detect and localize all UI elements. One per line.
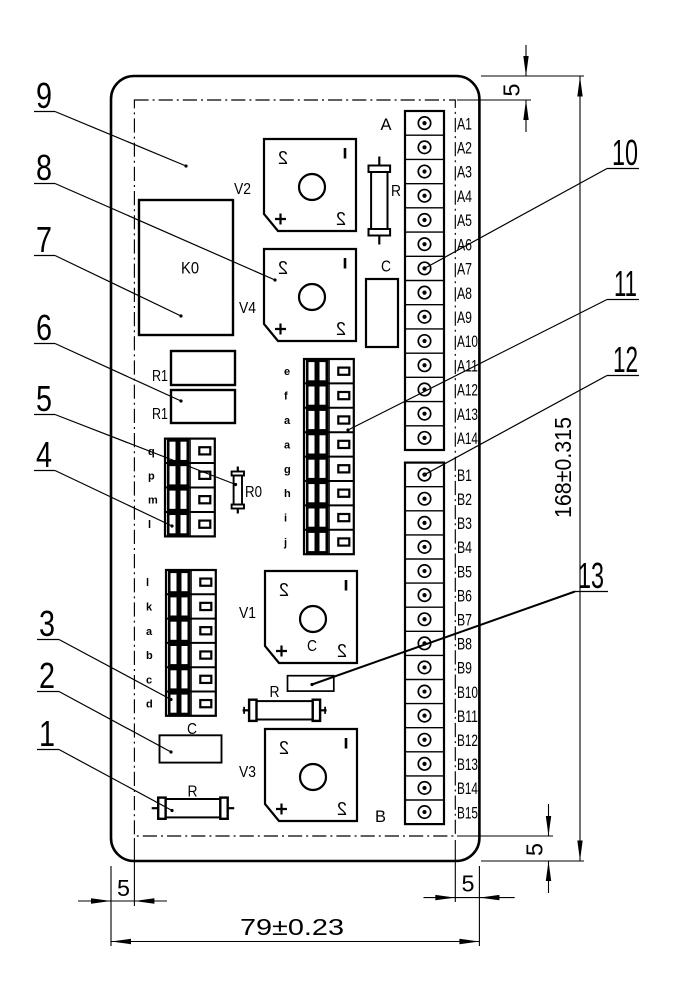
svg-text:b: b [146,650,153,662]
svg-text:V3: V3 [239,764,256,781]
svg-text:l: l [148,519,151,531]
svg-text:4: 4 [36,434,52,475]
svg-text:B15: B15 [457,803,478,822]
svg-text:2: 2 [278,258,288,278]
svg-text:A4: A4 [457,187,472,206]
svg-text:10: 10 [612,132,638,173]
svg-text:R: R [270,684,280,701]
svg-text:A8: A8 [457,284,472,303]
svg-text:B7: B7 [457,610,472,629]
svg-text:5: 5 [522,843,548,856]
svg-text:c: c [146,674,152,686]
svg-text:A5: A5 [457,211,472,230]
svg-text:2: 2 [337,641,347,661]
svg-text:B4: B4 [457,538,472,557]
svg-text:R0: R0 [245,484,262,501]
svg-text:m: m [148,495,158,507]
svg-text:12: 12 [613,339,638,380]
svg-text:B3: B3 [457,514,472,533]
svg-text:R1: R1 [152,406,168,423]
svg-text:p: p [148,470,155,482]
svg-text:2: 2 [279,580,289,600]
svg-text:79±0.23: 79±0.23 [240,914,344,940]
svg-text:k: k [146,601,153,613]
svg-text:B1: B1 [457,466,472,485]
svg-text:6: 6 [36,307,52,348]
svg-text:3: 3 [39,603,55,644]
svg-text:B: B [375,807,386,826]
svg-text:a: a [284,439,291,451]
svg-text:B5: B5 [457,562,472,581]
svg-text:11: 11 [614,263,637,304]
svg-text:5: 5 [117,875,130,901]
svg-text:2: 2 [337,799,347,819]
svg-text:C: C [307,638,317,655]
svg-text:C: C [187,721,197,738]
svg-text:V1: V1 [239,605,256,622]
svg-text:V4: V4 [239,300,256,317]
svg-text:2: 2 [336,209,346,229]
svg-text:e: e [284,366,290,378]
svg-text:2: 2 [336,319,346,339]
svg-text:5: 5 [36,378,52,419]
svg-text:A12: A12 [457,381,478,400]
svg-text:5: 5 [462,871,475,897]
svg-text:A7: A7 [457,260,472,279]
svg-text:A9: A9 [457,308,472,327]
svg-text:A: A [381,115,393,134]
svg-text:l: l [146,577,149,589]
svg-text:R1: R1 [152,368,168,385]
svg-text:A2: A2 [457,139,472,158]
svg-text:h: h [284,488,291,500]
svg-text:A6: A6 [457,235,472,254]
svg-text:168±0.315: 168±0.315 [550,417,576,518]
svg-text:K0: K0 [181,259,199,278]
svg-text:7: 7 [36,219,52,260]
svg-text:B2: B2 [457,490,472,509]
svg-text:B11: B11 [457,707,478,726]
svg-text:1: 1 [39,713,55,754]
svg-text:g: g [284,464,291,476]
svg-text:2: 2 [278,148,288,168]
svg-text:V2: V2 [234,181,251,198]
svg-text:A1: A1 [457,114,472,133]
svg-text:B10: B10 [457,683,478,702]
svg-text:8: 8 [36,147,52,188]
svg-text:f: f [284,391,288,403]
svg-text:A14: A14 [457,429,478,448]
svg-text:B12: B12 [457,731,478,750]
svg-text:B14: B14 [457,779,478,798]
svg-text:2: 2 [279,738,289,758]
svg-text:A10: A10 [457,332,478,351]
svg-text:A13: A13 [457,405,478,424]
svg-text:B9: B9 [457,659,472,678]
svg-text:C: C [381,259,391,276]
svg-text:B8: B8 [457,635,472,654]
svg-text:9: 9 [36,75,52,116]
svg-text:2: 2 [39,655,55,696]
svg-text:B13: B13 [457,755,478,774]
svg-text:i: i [284,513,287,525]
svg-text:R: R [391,183,401,200]
svg-text:a: a [146,626,153,638]
svg-text:A3: A3 [457,163,472,182]
svg-text:d: d [146,699,153,711]
svg-text:5: 5 [499,84,525,97]
svg-text:j: j [283,537,287,549]
svg-text:R: R [188,784,198,801]
svg-text:13: 13 [578,555,604,596]
svg-text:B6: B6 [457,586,472,605]
svg-text:a: a [284,415,291,427]
